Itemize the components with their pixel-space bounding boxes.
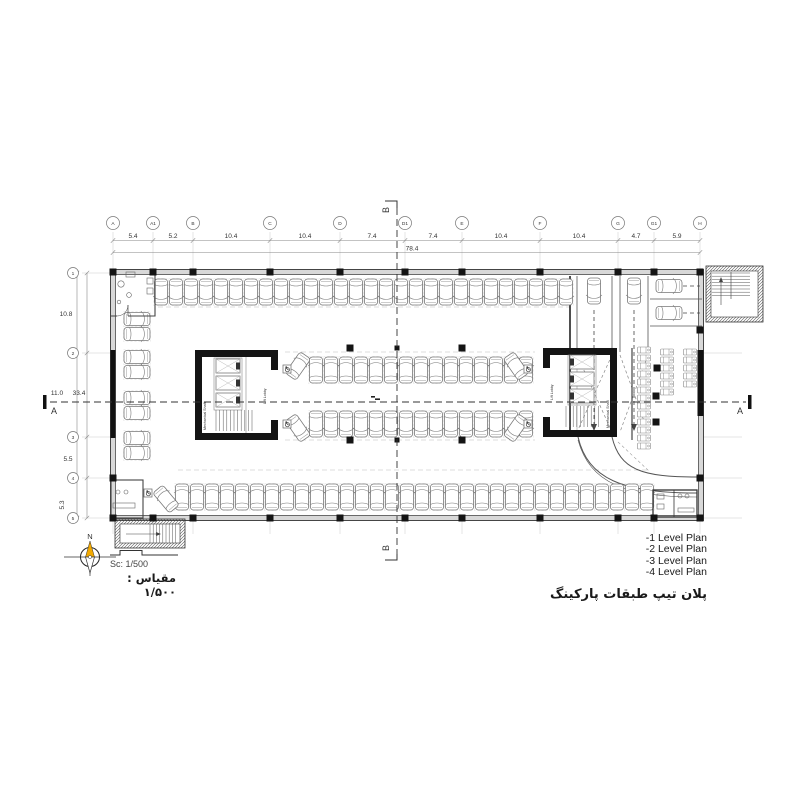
car-icon — [398, 357, 414, 383]
car-icon — [428, 357, 444, 383]
car-icon — [489, 484, 505, 510]
stair-block-top-right — [706, 266, 763, 322]
dim-text: 5.9 — [672, 233, 681, 240]
car-icon — [474, 484, 490, 510]
car-icon — [279, 484, 295, 510]
car-icon — [338, 357, 354, 383]
dim-text: 5.2 — [168, 233, 177, 240]
car-icon — [318, 279, 334, 305]
dim-text: 10.4 — [573, 233, 586, 240]
car-icon — [264, 484, 280, 510]
car-icon — [656, 278, 682, 294]
car-icon — [309, 484, 325, 510]
car-icon — [353, 411, 369, 437]
car-icon — [498, 279, 514, 305]
car-icon — [228, 279, 244, 305]
car-icon — [124, 430, 150, 446]
motorcycle-stall-icon — [661, 365, 674, 371]
car-icon — [368, 411, 384, 437]
car-icon — [369, 484, 385, 510]
motorcycle-stall-icon — [661, 373, 674, 379]
section-a-label-left: A — [51, 406, 57, 416]
car-icon — [413, 357, 429, 383]
level-plan-list: -1 Level Plan -2 Level Plan -3 Level Pla… — [540, 533, 707, 579]
compass-north-label: N — [87, 532, 92, 541]
car-icon — [249, 484, 265, 510]
car-icon — [564, 484, 580, 510]
drawing-title-fa: پلان تیپ طبقات پارکینگ — [440, 587, 707, 602]
car-icon — [124, 390, 150, 406]
accessible-parking-icon — [524, 420, 532, 428]
car-icon — [213, 279, 229, 305]
motorcycle-stall-icon — [638, 355, 651, 361]
motorcycle-stall-icon — [638, 395, 651, 401]
grid-col-label: G — [616, 221, 620, 227]
car-icon — [528, 279, 544, 305]
car-icon — [444, 484, 460, 510]
car-icon — [198, 279, 214, 305]
dim-text: 10.8 — [60, 311, 73, 318]
dim-text: 10.4 — [299, 233, 312, 240]
car-icon — [204, 484, 220, 510]
core-right-mech-shaft-label: Mechanical Shaft — [606, 400, 610, 428]
car-icon — [443, 357, 459, 383]
dim-total-text: 78.4 — [406, 246, 419, 253]
motorcycle-stall-icon — [638, 347, 651, 353]
motorcycle-stall-icon — [638, 403, 651, 409]
car-icon — [273, 279, 289, 305]
car-icon — [413, 411, 429, 437]
grid-col-label: F — [539, 221, 542, 227]
car-icon — [534, 484, 550, 510]
car-icon — [586, 278, 602, 304]
car-icon — [183, 279, 199, 305]
dim-text: 10.4 — [225, 233, 238, 240]
scale-bar — [110, 551, 178, 556]
dim-text: 5.5 — [63, 456, 72, 463]
car-icon — [513, 279, 529, 305]
car-icon — [656, 305, 682, 321]
car-icon — [124, 445, 150, 461]
grid-row-label: 1 — [72, 271, 75, 277]
car-icon — [353, 357, 369, 383]
car-icon — [443, 411, 459, 437]
car-icon — [453, 279, 469, 305]
motorcycle-stall-icon — [638, 435, 651, 441]
accessible-parking-icon — [283, 420, 291, 428]
car-icon — [368, 357, 384, 383]
car-icon — [626, 278, 642, 304]
grid-col-label: D1 — [402, 221, 408, 227]
car-icon — [258, 279, 274, 305]
car-icon — [308, 357, 324, 383]
motorcycle-stall-icon — [661, 357, 674, 363]
motorcycle-stall-icon — [661, 349, 674, 355]
grid-col-label: C — [268, 221, 272, 227]
motorcycle-stall-icon — [638, 443, 651, 449]
dim-text: 7.4 — [428, 233, 437, 240]
car-icon — [288, 279, 304, 305]
section-b-label-bottom: B — [381, 545, 391, 551]
car-icon — [189, 484, 205, 510]
dim-total-text: 33.4 — [73, 390, 86, 397]
car-icon — [124, 326, 150, 342]
car-icon — [549, 484, 565, 510]
car-icon — [354, 484, 370, 510]
car-icon — [483, 279, 499, 305]
accessible-parking-icon — [283, 365, 291, 373]
dim-text: 11.0 — [51, 390, 64, 397]
car-icon — [308, 411, 324, 437]
accessible-parking-icon — [144, 489, 152, 497]
car-icon — [333, 279, 349, 305]
car-icon — [558, 279, 574, 305]
grid-row-label: 5 — [72, 516, 75, 522]
dim-text: 5.4 — [128, 233, 137, 240]
compass-needle-south — [86, 557, 95, 573]
car-icon — [624, 484, 640, 510]
car-icon — [473, 357, 489, 383]
car-icon — [219, 484, 235, 510]
motorcycle-stall-icon — [638, 411, 651, 417]
car-icon — [339, 484, 355, 510]
north-compass: N — [64, 532, 116, 576]
grid-row-label: 4 — [72, 476, 75, 482]
car-icon — [423, 279, 439, 305]
car-icon — [414, 484, 430, 510]
shear-wall-left — [111, 350, 116, 438]
car-icon — [338, 411, 354, 437]
car-icon — [488, 357, 504, 383]
car-icon — [363, 279, 379, 305]
car-icon — [393, 279, 409, 305]
car-icon — [488, 411, 504, 437]
motorcycle-stall-icon — [684, 381, 697, 387]
section-b-label-top: B — [381, 207, 391, 213]
car-icon — [384, 484, 400, 510]
car-icon — [458, 357, 474, 383]
car-icon — [168, 279, 184, 305]
scale-text: Sc: 1/500 — [110, 559, 148, 569]
car-icon — [458, 411, 474, 437]
car-icon — [348, 279, 364, 305]
drawing-sheet: Mechanical Shaft Lift Lobby Lift Lobby M… — [0, 0, 800, 800]
car-icon — [459, 484, 475, 510]
car-icon — [124, 349, 150, 365]
scale-text-fa: مقیاس : ۱/۵۰۰ — [106, 571, 176, 599]
car-icon — [243, 279, 259, 305]
motorcycle-stall-icon — [638, 427, 651, 433]
car-icon — [378, 279, 394, 305]
motorcycle-stall-icon — [638, 371, 651, 377]
car-icon — [468, 279, 484, 305]
car-icon — [399, 484, 415, 510]
car-icon — [234, 484, 250, 510]
motorcycle-stall-icon — [661, 389, 674, 395]
car-icon — [323, 357, 339, 383]
car-icon — [609, 484, 625, 510]
compass-needle-north — [86, 541, 95, 557]
car-icon — [519, 484, 535, 510]
car-icon — [438, 279, 454, 305]
car-icon — [429, 484, 445, 510]
grid-col-label: G1 — [651, 221, 658, 227]
motorcycle-stall-icon — [684, 349, 697, 355]
core-left-mech-shaft-label: Mechanical Shaft — [203, 402, 207, 430]
motorcycle-stall-icon — [638, 379, 651, 385]
car-icon — [323, 411, 339, 437]
section-a-label-right: A — [737, 406, 743, 416]
car-icon — [124, 364, 150, 380]
car-icon — [504, 484, 520, 510]
grid-col-label: B — [191, 221, 194, 227]
car-icon — [594, 484, 610, 510]
grid-col-label: H — [698, 221, 702, 227]
motorcycle-stall-icon — [638, 387, 651, 393]
car-icon — [303, 279, 319, 305]
grid-col-label: D — [338, 221, 342, 227]
dim-text: 4.7 — [631, 233, 640, 240]
grid-row-label: 2 — [72, 351, 75, 357]
car-icon — [294, 484, 310, 510]
accessible-parking-icon — [524, 365, 532, 373]
shear-wall-right — [698, 350, 704, 416]
car-icon — [324, 484, 340, 510]
dim-text: 10.4 — [495, 233, 508, 240]
level-plan-item: -4 Level Plan — [540, 567, 707, 578]
car-icon — [398, 411, 414, 437]
car-icon — [124, 405, 150, 421]
core-right-lift-lobby-label: Lift Lobby — [550, 384, 554, 400]
car-icon — [428, 411, 444, 437]
car-icon — [543, 279, 559, 305]
dim-text: 7.4 — [367, 233, 376, 240]
car-icon — [579, 484, 595, 510]
motorcycle-stall-icon — [638, 363, 651, 369]
motorcycle-stall-icon — [684, 373, 697, 379]
grid-col-label: E — [460, 221, 463, 227]
floor-plan-drawing: Mechanical Shaft Lift Lobby Lift Lobby M… — [0, 0, 800, 800]
motorcycle-stall-icon — [661, 381, 674, 387]
dim-text: 5.3 — [59, 500, 66, 509]
motorcycle-stall-icon — [684, 365, 697, 371]
grid-row-label: 3 — [72, 435, 75, 441]
car-icon — [408, 279, 424, 305]
grid-col-label: A1 — [150, 221, 156, 227]
car-icon — [473, 411, 489, 437]
motorcycle-stall-icon — [638, 419, 651, 425]
motorcycle-stall-icon — [684, 357, 697, 363]
